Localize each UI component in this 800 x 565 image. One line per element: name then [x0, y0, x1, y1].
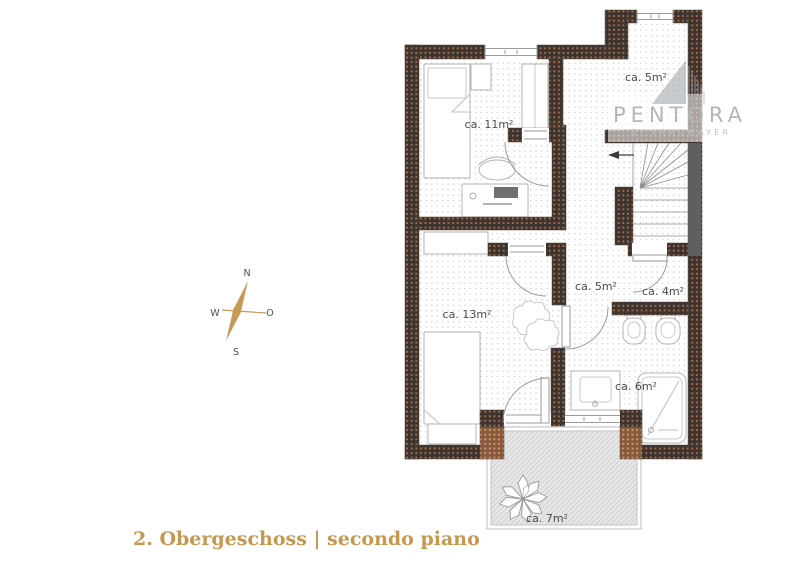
wall-doorA-corner — [549, 125, 566, 142]
wall-dormer-north-right — [673, 10, 688, 23]
label-balcony: ca. 7m² — [526, 512, 568, 525]
compass-east-label: O — [266, 308, 273, 319]
wall-desk-hall — [552, 142, 566, 218]
bed-top-icon — [424, 64, 470, 178]
wall-balcony-stub-right — [620, 410, 642, 427]
window-north — [485, 45, 537, 59]
wall-south-left — [405, 445, 482, 459]
wall-dormer-north-left — [628, 10, 637, 23]
wall-stairs-west — [615, 187, 633, 245]
wall-west — [405, 45, 419, 459]
floor-plan-canvas: ca. 11m² ca. 5m² ca. 5m² ca. 4m² ca. 13m… — [0, 0, 800, 565]
balcony-pier-left — [480, 427, 504, 459]
compass-north-label: N — [243, 268, 250, 279]
floor-title: 2. Obergeschoss | secondo piano — [133, 528, 480, 550]
dresser-icon — [424, 232, 488, 254]
wall-stairs-section-gray — [688, 143, 701, 256]
wall-south-right — [640, 445, 702, 459]
label-storage: ca. 4m² — [642, 285, 684, 298]
wall-bedrooms-divider-south-e — [546, 243, 566, 256]
compass-rose: N O S W — [210, 268, 273, 358]
watermark-tagline-text: BY IMMOMAYER — [631, 128, 732, 137]
compass-west-label: W — [210, 308, 220, 319]
window-bathroom-balcony — [565, 412, 620, 426]
sink-vanity-icon — [571, 371, 620, 410]
label-landing-top: ca. 5m² — [625, 71, 667, 84]
label-bedroom-top: ca. 11m² — [465, 118, 514, 131]
wall-bedrooms-divider-north — [419, 217, 566, 230]
wardrobe-icon — [522, 64, 548, 128]
wall-balcony-stub-left — [480, 410, 504, 427]
label-hallway: ca. 5m² — [575, 280, 617, 293]
nightstand-icon — [471, 64, 491, 90]
wall-bedroom13-bath — [551, 348, 565, 426]
label-bedroom-bottom: ca. 13m² — [443, 308, 492, 321]
window-dormer — [637, 10, 673, 23]
wall-dormer-west — [605, 10, 628, 59]
wall-north-left — [405, 45, 485, 59]
wall-stairs-south-w — [628, 243, 632, 256]
wall-hall-bedroom13 — [552, 256, 566, 305]
floorplan-page: ca. 11m² ca. 5m² ca. 5m² ca. 4m² ca. 13m… — [0, 0, 800, 565]
compass-south-label: S — [233, 347, 239, 358]
wall-bedroomtop-hall — [549, 59, 563, 125]
wall-stairs-south-e — [667, 243, 688, 256]
wall-bedrooms-divider-south-w — [488, 243, 508, 256]
bed-bottom-icon — [424, 332, 480, 444]
watermark-brand-text: PENTORA — [613, 103, 747, 127]
label-bathroom: ca. 6m² — [615, 380, 657, 393]
balcony-pier-right — [620, 427, 642, 459]
wall-bath-north — [612, 302, 688, 315]
